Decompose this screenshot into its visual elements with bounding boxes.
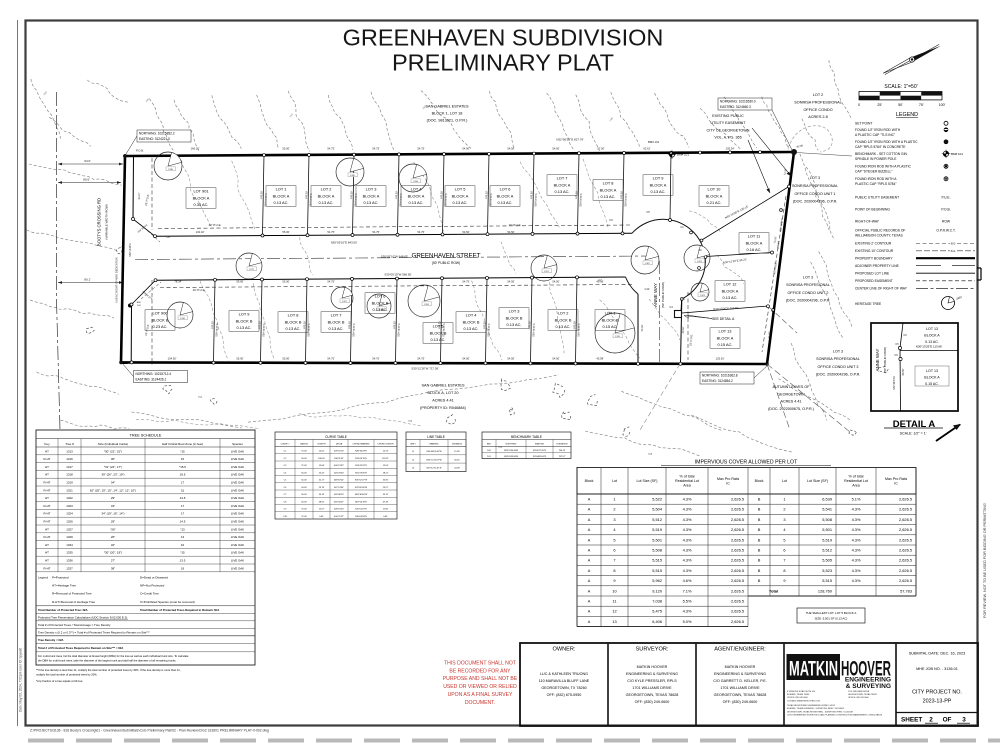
svg-text:GEORGETOWN, TX 78260: GEORGETOWN, TX 78260 [541,686,586,690]
svg-text:R-HT: R-HT [44,520,51,524]
svg-text:CIVIL ENGINEERING SURVEYING L: CIVIL ENGINEERING SURVEYING LAND PLANNIN… [787,714,883,717]
svg-text:128,760: 128,760 [818,588,833,593]
svg-text:54.50': 54.50' [462,147,470,151]
svg-text:OWNER:: OWNER: [553,647,576,653]
svg-text:Legend: Legend [38,575,48,579]
svg-text:SUBMITAL DATE: DEC. 16, 2023: SUBMITAL DATE: DEC. 16, 2023 [909,652,965,656]
svg-text:A: A [588,609,591,614]
svg-text:Total: Total [769,588,778,593]
svg-text:A: A [588,507,591,512]
svg-text:2,626.5: 2,626.5 [899,578,912,583]
svg-text:5,541: 5,541 [822,507,832,512]
svg-text:45.98': 45.98' [596,356,604,360]
svg-text:80.1': 80.1' [84,278,91,282]
svg-text:75.00': 75.00' [301,465,307,467]
svg-text:C9: C9 [687,292,691,296]
svg-text:A: A [588,517,591,522]
svg-text:105.00': 105.00' [350,190,353,199]
svg-text:6: 6 [783,548,785,553]
svg-text:X=Prohibited Species (must be: X=Prohibited Species (must be removed) [140,600,195,604]
svg-text:BLOCK A: BLOCK A [650,182,667,187]
svg-text:0.13 AC.: 0.13 AC. [464,326,479,331]
svg-text:LOT 6: LOT 6 [375,294,386,299]
svg-text:4.3%: 4.3% [852,568,861,573]
svg-text:BLOCK A: BLOCK A [706,193,723,198]
svg-text:D=Dead or Diseased: D=Dead or Diseased [140,575,168,579]
svg-text:CURVE #: CURVE # [281,443,291,445]
svg-text:009°13'32": 009°13'32" [334,465,344,467]
svg-text:0.15 AC.: 0.15 AC. [603,324,618,329]
svg-text:12.07': 12.07' [319,509,325,511]
svg-text:5,501: 5,501 [822,527,832,532]
svg-text:LENGTH: LENGTH [317,443,326,445]
svg-text:2,626.5: 2,626.5 [899,548,912,553]
svg-text:2,626.5: 2,626.5 [731,578,744,583]
svg-text:Key: Key [44,442,50,446]
svg-text:Block: Block [755,479,764,483]
svg-text:A: A [588,548,591,553]
svg-text:12: 12 [612,609,616,614]
svg-text:For multi-trunk trees, list th: For multi-trunk trees, list the total di… [38,654,189,658]
svg-text:LOT 10: LOT 10 [708,187,722,192]
svg-text:LOT 7: LOT 7 [557,176,568,181]
svg-text:Block: Block [585,479,594,483]
svg-text:PROPOSED LOT LINE: PROPOSED LOT LINE [855,271,890,275]
svg-text:A: A [588,568,591,573]
svg-text:*15: *15 [180,449,185,453]
svg-text:LOT 5: LOT 5 [455,187,466,192]
svg-text:LOT 3: LOT 3 [803,276,813,280]
svg-text:75.00': 75.00' [301,451,307,453]
svg-text:55.00': 55.00' [282,356,290,360]
svg-text:NORTHING: 10215852.2: NORTHING: 10215852.2 [139,132,175,136]
svg-text:105.00': 105.00' [483,320,486,329]
svg-text:EASTING: 3124221.0: EASTING: 3124221.0 [139,137,170,141]
svg-text:LIVE OAK: LIVE OAK [231,473,244,477]
svg-text:R-HT: R-HT [44,481,51,485]
svg-text:75.00': 75.00' [301,516,307,518]
svg-text:LOT 900: LOT 900 [152,311,168,316]
svg-text:OFF: (830) 249-0600: OFF: (830) 249-0600 [635,700,670,704]
svg-text:105.00': 105.00' [530,190,533,199]
svg-text:LIVE OAK: LIVE OAK [231,566,244,570]
svg-text:(50' PUBLIC ROW): (50' PUBLIC ROW) [432,261,460,265]
svg-text:2,626.5: 2,626.5 [731,568,744,573]
svg-text:NORTHING: 10215712.4: NORTHING: 10215712.4 [136,372,172,376]
svg-text:(DOC. 2020004296, O.P.R.: (DOC. 2020004296, O.P.R. [816,373,861,377]
svg-text:6: 6 [613,548,615,553]
svg-text:SAN GABRIEL ESTATES: SAN GABRIEL ESTATES [426,105,469,109]
svg-text:Half Critical Root Zone (in fe: Half Critical Root Zone (in feet) [162,442,203,446]
svg-text:CITY OF GEORGETOWN: CITY OF GEORGETOWN [707,128,750,132]
svg-text:Residential Lot: Residential Lot [675,479,699,483]
svg-text:Total # of Protected Trees / T: Total # of Protected Trees / Total Acrea… [38,623,111,627]
svg-text:TEXAS REGISTERED ENGINEERING F: TEXAS REGISTERED ENGINEERING FIRM F-1451… [787,704,836,707]
svg-text:16: 16 [181,543,185,547]
svg-text:BLOCK A: BLOCK A [318,193,335,198]
svg-text:8: 8 [783,568,785,573]
svg-text:LOT 13: LOT 13 [926,369,938,373]
svg-text:3: 3 [962,717,966,724]
svg-text:S30°12'26"W 717.36': S30°12'26"W 717.36' [411,367,439,371]
svg-text:*Any fraction of a tree equals: *Any fraction of a tree equals a full tr… [36,679,83,683]
svg-text:BLOCK A: BLOCK A [746,240,763,245]
svg-text:SPINDLE IN POWER POLE: SPINDLE IN POWER POLE [855,157,897,161]
svg-text:S30°46'34"E: S30°46'34"E [893,376,896,390]
svg-text:Lot Size (SF): Lot Size (SF) [637,479,658,483]
svg-text:P.O.B.: P.O.B. [941,208,950,212]
svg-text:0.15 AC.: 0.15 AC. [925,382,939,386]
svg-text:LOT 8: LOT 8 [603,181,614,186]
svg-text:N76°09'19"E: N76°09'19"E [355,458,367,460]
svg-text:1701 WILLIAMS DRIVE: 1701 WILLIAMS DRIVE [848,690,870,693]
svg-text:10' P.U.E.: 10' P.U.E. [192,288,205,292]
svg-text:108°31'01": 108°31'01" [334,458,344,460]
svg-text:B: B [758,537,761,542]
svg-text:7: 7 [783,558,785,563]
svg-text:5: 5 [613,537,615,542]
svg-text:PUBLIC UTILITY EASEMENT: PUBLIC UTILITY EASEMENT [855,196,899,200]
svg-text:1: 1 [783,497,785,502]
svg-text:15: 15 [181,457,185,461]
svg-text:2,626.5: 2,626.5 [731,558,744,563]
svg-text:BM#: BM# [137,302,142,304]
svg-text:OFFICE CONDO UNIT 2: OFFICE CONDO UNIT 2 [788,291,829,295]
svg-text:LOT 13: LOT 13 [926,327,938,331]
svg-text:R-HT: R-HT [44,535,51,539]
svg-text:50.00': 50.00' [301,501,307,503]
svg-text:4.3%: 4.3% [683,558,692,563]
svg-text:BLOCK A: BLOCK A [722,288,739,293]
svg-text:4.3%: 4.3% [683,568,692,573]
svg-text:B: B [758,548,761,553]
svg-text:50.00': 50.00' [301,480,307,482]
svg-text:SONRISA PROFESSIONAL: SONRISA PROFESSIONAL [792,184,838,188]
svg-text:PLASTIC CAP "RPLS 5784": PLASTIC CAP "RPLS 5784" [855,182,897,186]
svg-text:12.23': 12.23' [383,451,389,453]
svg-text:(VARIABLE WIDTH ROW): (VARIABLE WIDTH ROW) [105,204,109,239]
svg-text:LOT 3: LOT 3 [833,350,843,354]
svg-text:C10: C10 [645,287,650,291]
svg-text:B: B [758,517,761,522]
svg-text:5,512: 5,512 [822,548,832,553]
svg-text:SONRISA PROFESSIONAL: SONRISA PROFESSIONAL [794,100,841,104]
svg-text:R=Removal of Protected Tree: R=Removal of Protected Tree [52,592,92,596]
svg-text:055°56'07": 055°56'07" [334,501,344,503]
svg-text:105.54': 105.54' [726,147,735,151]
svg-text:33.70': 33.70' [383,494,389,496]
svg-text:EASTING: 3124854.2: EASTING: 3124854.2 [702,379,733,383]
svg-text:5,512: 5,512 [652,517,662,522]
svg-text:94.97': 94.97' [138,192,141,199]
svg-text:797.97': 797.97' [559,456,566,458]
svg-text:2,626.5: 2,626.5 [899,507,912,512]
svg-text:0.35 AC.: 0.35 AC. [194,202,209,207]
svg-text:*30" (22", 15"): *30" (22", 15") [104,449,122,453]
svg-text:4.3%: 4.3% [852,507,861,512]
svg-text:5,501: 5,501 [652,537,662,542]
svg-text:HT: HT [45,527,49,531]
svg-text:4.6%: 4.6% [683,578,692,583]
svg-text:2023-13-PP: 2023-13-PP [923,699,952,705]
svg-text:54.50': 54.50' [507,230,515,234]
svg-text:2,626.5: 2,626.5 [899,568,912,573]
svg-text:BM# 101: BM# 101 [951,152,963,156]
svg-text:4.3%: 4.3% [683,548,692,553]
svg-text:9,120: 9,120 [652,588,663,593]
svg-text:1319: 1319 [66,481,73,485]
svg-text:8: 8 [613,568,615,573]
svg-text:Area: Area [683,483,691,487]
svg-text:SURVEYOR:: SURVEYOR: [636,647,669,653]
svg-text:BLOCK B: BLOCK B [152,317,169,322]
svg-text:ENGINEERING & SURVEYING: ENGINEERING & SURVEYING [626,672,678,676]
svg-text:1701 WILLIAMS DRIVE: 1701 WILLIAMS DRIVE [720,686,760,690]
svg-text:A: A [588,578,591,583]
svg-text:048°18'24": 048°18'24" [334,480,344,482]
svg-text:0.13 AC.: 0.13 AC. [555,189,570,194]
svg-text:FOR REVIEW. NOT TO BE USED FOR: FOR REVIEW. NOT TO BE USED FOR BIDDING O… [983,503,987,618]
svg-text:OFFICE CONDO UNIT 1: OFFICE CONDO UNIT 1 [795,192,836,196]
svg-text:-802-: -802- [950,242,956,246]
svg-text:POINT OF BEGINNING: POINT OF BEGINNING [855,208,890,212]
svg-text:34": 34" [111,481,115,485]
svg-text:BLOCK B: BLOCK B [328,319,345,324]
svg-text:11: 11 [612,599,616,604]
svg-text:BOOTYS CROSSING RD: BOOTYS CROSSING RD [97,198,102,246]
svg-text:FOUND IRON ROD WITH A PLASTIC: FOUND IRON ROD WITH A PLASTIC [855,165,911,169]
svg-text:0.13 AC.: 0.13 AC. [651,189,666,194]
svg-text:SONRISA PROFESIONAL: SONRISA PROFESIONAL [816,357,860,361]
svg-text:54.50': 54.50' [552,147,560,151]
svg-text:4.3%: 4.3% [852,527,861,532]
svg-text:Max Pro Rata: Max Pro Rata [717,477,739,481]
svg-text:R-HT: R-HT [44,512,51,516]
svg-text:105.00': 105.00' [573,320,576,329]
svg-text:2,626.5: 2,626.5 [731,537,744,542]
svg-text:0.13 AC.: 0.13 AC. [507,322,522,327]
svg-text:N30°05'10"E 843.05': N30°05'10"E 843.05' [331,241,358,245]
svg-text:4.3%: 4.3% [852,548,861,553]
svg-text:0.08 AC RIGHT-OF-WAY DEDICATIO: 0.08 AC RIGHT-OF-WAY DEDICATION [115,257,119,302]
svg-text:Lot Size (SF): Lot Size (SF) [807,479,828,483]
svg-text:2,626.5: 2,626.5 [899,537,912,542]
svg-text:LIVE OAK: LIVE OAK [231,551,244,555]
svg-text:027°14'44": 027°14'44" [334,487,344,489]
svg-text:LIVE OAK: LIVE OAK [231,520,244,524]
svg-text:S78°09'04"W: S78°09'04"W [355,487,367,489]
svg-text:54.50': 54.50' [552,280,560,284]
svg-text:LOT 12: LOT 12 [724,282,737,287]
svg-text:HT=Heritage Tree: HT=Heritage Tree [52,584,76,588]
svg-text:3: 3 [613,517,615,522]
svg-text:794: 794 [198,395,203,399]
svg-text:4.3%: 4.3% [683,517,692,522]
svg-text:54.50': 54.50' [507,280,515,284]
svg-text:0.15 AC.: 0.15 AC. [718,342,733,347]
svg-text:LOT 8: LOT 8 [288,313,299,318]
svg-text:(DOC. 9813621, O.P.R.): (DOC. 9813621, O.P.R.) [427,119,469,123]
svg-text:ENGINEERING & SURVEYING: ENGINEERING & SURVEYING [714,672,766,676]
svg-text:B: B [758,507,761,512]
svg-text:VOL. A, PG. 365: VOL. A, PG. 365 [714,136,741,140]
svg-text:5,522: 5,522 [652,497,662,502]
svg-text:4.3%: 4.3% [683,537,692,542]
svg-text:BENCHMARK - SET COTTON GIN: BENCHMARK - SET COTTON GIN [855,152,908,156]
svg-text:54.75': 54.75' [462,280,470,284]
svg-text:42.17': 42.17' [319,480,325,482]
svg-text:2,626.5: 2,626.5 [731,517,744,522]
svg-text:5,505: 5,505 [822,558,832,563]
svg-text:29": 29" [111,496,115,500]
svg-text:1322: 1322 [66,496,73,500]
svg-text:R-HT: R-HT [44,566,51,570]
svg-text:54.75': 54.75' [372,147,380,151]
svg-text:LUC & KATHLEEN TRUONG: LUC & KATHLEEN TRUONG [540,672,588,676]
svg-text:S59°13'30"E: S59°13'30"E [129,243,132,257]
svg-text:LINE #: LINE # [410,443,417,445]
svg-text:47.49': 47.49' [383,501,389,503]
svg-text:1324: 1324 [66,512,73,516]
svg-text:*31" (22", 17"): *31" (22", 17") [104,465,122,469]
svg-text:HT: HT [45,465,49,469]
svg-text:LOT 9: LOT 9 [653,176,664,181]
svg-text:LIVE OAK: LIVE OAK [231,457,244,461]
svg-text:RIGHT-OF-WAY: RIGHT-OF-WAY [855,220,880,224]
svg-text:Date: May 03, 2024, 7:02pm Us: Date: May 03, 2024, 7:02pm User ID: bpye… [19,648,23,712]
svg-text:2,626.5: 2,626.5 [731,548,744,553]
svg-text:68.56': 68.56' [682,326,685,333]
svg-text:12.00': 12.00' [319,451,325,453]
svg-text:N32°56'52"E 827.76': N32°56'52"E 827.76' [556,138,584,142]
svg-text:NORTHING: 10216362.8: NORTHING: 10216362.8 [702,374,738,378]
svg-text:ELEVATION: ELEVATION [557,442,568,445]
svg-text:0.13 AC.: 0.13 AC. [373,307,388,312]
svg-text:BLOCK A: BLOCK A [452,193,469,198]
svg-text:105.00': 105.00' [438,320,441,329]
svg-text:HT: HT [45,473,49,477]
svg-text:2,626.5: 2,626.5 [731,507,744,512]
svg-text:2,626.5: 2,626.5 [899,517,912,522]
svg-text:CHORD LENGTH: CHORD LENGTH [377,443,394,445]
svg-text:48.81': 48.81' [319,501,325,503]
svg-text:1329: 1329 [66,535,73,539]
svg-text:17: 17 [181,481,185,485]
svg-text:OFFICIAL PUBLIC RECORDS OF: OFFICIAL PUBLIC RECORDS OF [855,229,905,233]
svg-text:50.00': 50.00' [301,487,307,489]
svg-text:10' P.U.E.: 10' P.U.E. [208,223,221,227]
svg-text:4.3%: 4.3% [852,517,861,522]
svg-text:54.50': 54.50' [552,356,560,360]
svg-text:C2: C2 [698,248,702,252]
svg-text:54.50': 54.50' [462,356,470,360]
svg-text:S30°05'10"W 566.50': S30°05'10"W 566.50' [384,272,412,276]
svg-text:Lot: Lot [782,479,787,483]
svg-text:BLOCK B: BLOCK B [602,317,619,322]
svg-text:A: A [588,497,591,502]
svg-text:28.21': 28.21' [383,472,389,474]
svg-text:10215760.4942: 10215760.4942 [504,450,519,452]
svg-text:C4: C4 [669,305,673,309]
svg-text:6,539: 6,539 [822,497,832,502]
svg-text:HT: HT [45,496,49,500]
svg-text:BOERNE, TEXAS 78006: BOERNE, TEXAS 78006 [787,693,810,696]
svg-text:*13: *13 [180,527,185,531]
svg-text:N49°30'29"E: N49°30'29"E [355,451,367,453]
svg-text:ACRES 4.41: ACRES 4.41 [432,399,454,403]
svg-text:0.13 AC.: 0.13 AC. [925,340,939,344]
svg-text:C/O KYLE PRESSLER, RPLS: C/O KYLE PRESSLER, RPLS [627,679,677,683]
svg-text:GEORGETOWN, TEXAS 78628: GEORGETOWN, TEXAS 78628 [714,693,767,697]
svg-text:54.28': 54.28' [454,468,460,470]
svg-text:LIVE OAK: LIVE OAK [231,512,244,516]
svg-text:105.00': 105.00' [303,320,306,329]
svg-text:A: A [588,599,591,604]
svg-text:1326: 1326 [66,520,73,524]
svg-text:EASTING: EASTING [535,442,544,445]
svg-text:NP=Not Protected: NP=Not Protected [140,584,165,588]
svg-text:N30°13'26"E 113.66': N30°13'26"E 113.66' [916,345,943,349]
svg-text:BLOCK A: BLOCK A [554,182,571,187]
svg-text:3124462.0475: 3124462.0475 [533,456,547,458]
svg-text:N59°12'25.67"W: N59°12'25.67"W [426,459,441,461]
svg-text:LIVE OAK: LIVE OAK [231,535,244,539]
svg-text:4.3%: 4.3% [852,558,861,563]
svg-text:0.13 AC.: 0.13 AC. [409,200,424,205]
svg-text:Residential Lot: Residential Lot [844,479,868,483]
svg-text:O.P.R.W.C.T.: O.P.R.W.C.T. [936,229,955,233]
svg-text:132.32': 132.32' [196,230,205,234]
svg-text:*30" (20", 19"): *30" (20", 19") [104,551,122,555]
svg-text:17: 17 [181,504,185,508]
svg-text:0.13 AC.: 0.13 AC. [329,326,344,331]
svg-text:4.3%: 4.3% [852,537,861,542]
svg-text:105.00': 105.00' [348,320,351,329]
svg-text:**If the tree density is less: **If the tree density is less than 11, m… [36,668,181,672]
svg-text:5,519: 5,519 [822,537,832,542]
svg-text:50.00': 50.00' [301,472,307,474]
svg-text:EXISTING 10' CONTOUR: EXISTING 10' CONTOUR [855,249,894,253]
svg-text:68.56': 68.56' [902,368,905,375]
svg-text:IC: IC [894,481,898,485]
svg-text:009°13'20": 009°13'20" [334,509,344,511]
svg-text:105.00': 105.00' [440,190,443,199]
svg-text:54.50': 54.50' [507,147,515,151]
svg-text:0.13 AC.: 0.13 AC. [453,200,468,205]
svg-text:P.U.E.: P.U.E. [941,196,950,200]
svg-text:LOT 4: LOT 4 [466,313,478,318]
svg-text:0.21 AC.: 0.21 AC. [707,200,722,205]
svg-text:multiply the total number of p: multiply the total number of protected t… [36,673,98,677]
svg-text:5,519: 5,519 [652,527,662,532]
svg-text:B: B [758,568,761,573]
svg-text:& SURVEYING: & SURVEYING [846,683,891,690]
svg-text:BLOCK A, LOT 20: BLOCK A, LOT 20 [428,391,459,395]
svg-text:(DOC. 2020004296, O.P.R.: (DOC. 2020004296, O.P.R. [793,200,838,204]
svg-text:DELTA: DELTA [336,442,343,445]
svg-text:105.00': 105.00' [395,190,398,199]
svg-text:166.12': 166.12' [191,147,200,151]
svg-text:C1: C1 [680,225,684,229]
svg-text:BLOCK A: BLOCK A [363,193,380,198]
svg-text:BLOCK B: BLOCK B [506,315,523,320]
svg-text:C3: C3 [681,297,685,301]
svg-text:DISTANCE: DISTANCE [452,442,463,445]
svg-text:LOT 7: LOT 7 [331,313,342,318]
svg-text:75.00': 75.00' [301,509,307,511]
svg-text:(50' PUBLIC ROW): (50' PUBLIC ROW) [883,347,887,373]
svg-text:HT: HT [45,559,49,563]
